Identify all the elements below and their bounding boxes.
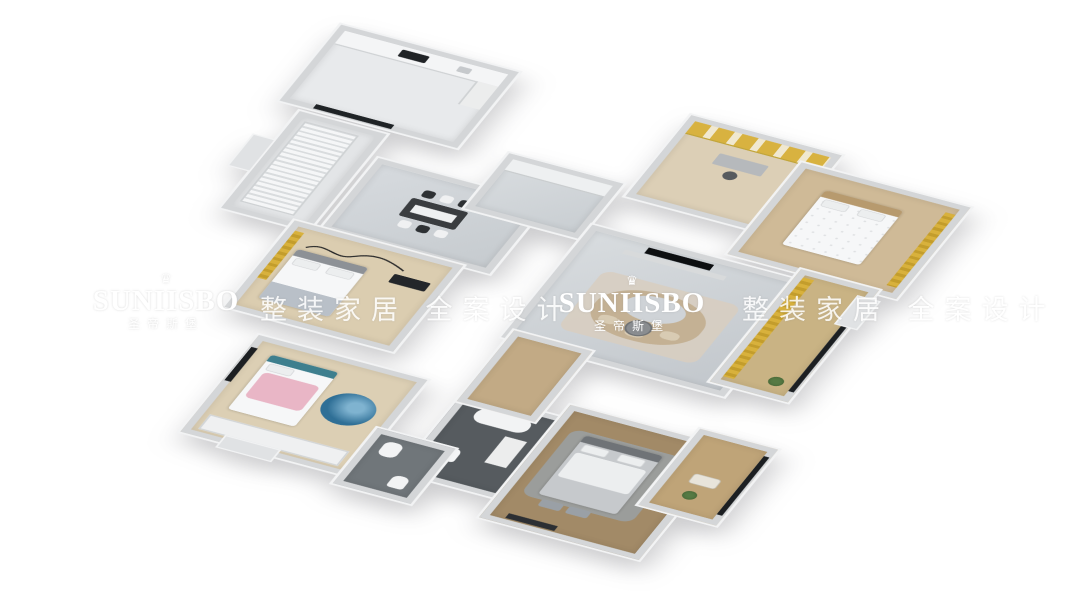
corridor-cabinets (504, 159, 613, 197)
window-frame (717, 456, 770, 516)
pink-blanket (244, 372, 320, 412)
floorplan-render: ♛ SUNIISBO 圣帝斯堡 整装家居 全案设计 ♛ SUNIISBO 圣帝斯… (0, 0, 1080, 608)
dining-chair (438, 195, 455, 205)
washbasin (376, 441, 405, 459)
bath-vanity (484, 436, 527, 468)
study-desk (712, 153, 769, 176)
moon-rug (311, 388, 385, 431)
lounge-chair (687, 473, 722, 490)
plant (680, 490, 700, 501)
apartment-3d-plan (22, 3, 1059, 598)
study-chair (720, 170, 740, 181)
toilet (386, 474, 412, 490)
plant (765, 375, 786, 387)
yellow-curtain (886, 212, 955, 287)
dining-chair (432, 229, 449, 239)
master-tv-cabinet (505, 513, 558, 531)
dining-chair (396, 219, 413, 229)
kitchen-fridge (458, 81, 498, 110)
dining-chair (414, 224, 431, 234)
dining-chair (420, 190, 437, 200)
kids-wardrobe (198, 414, 349, 466)
guest-bed (782, 190, 904, 265)
blanket (258, 281, 342, 317)
